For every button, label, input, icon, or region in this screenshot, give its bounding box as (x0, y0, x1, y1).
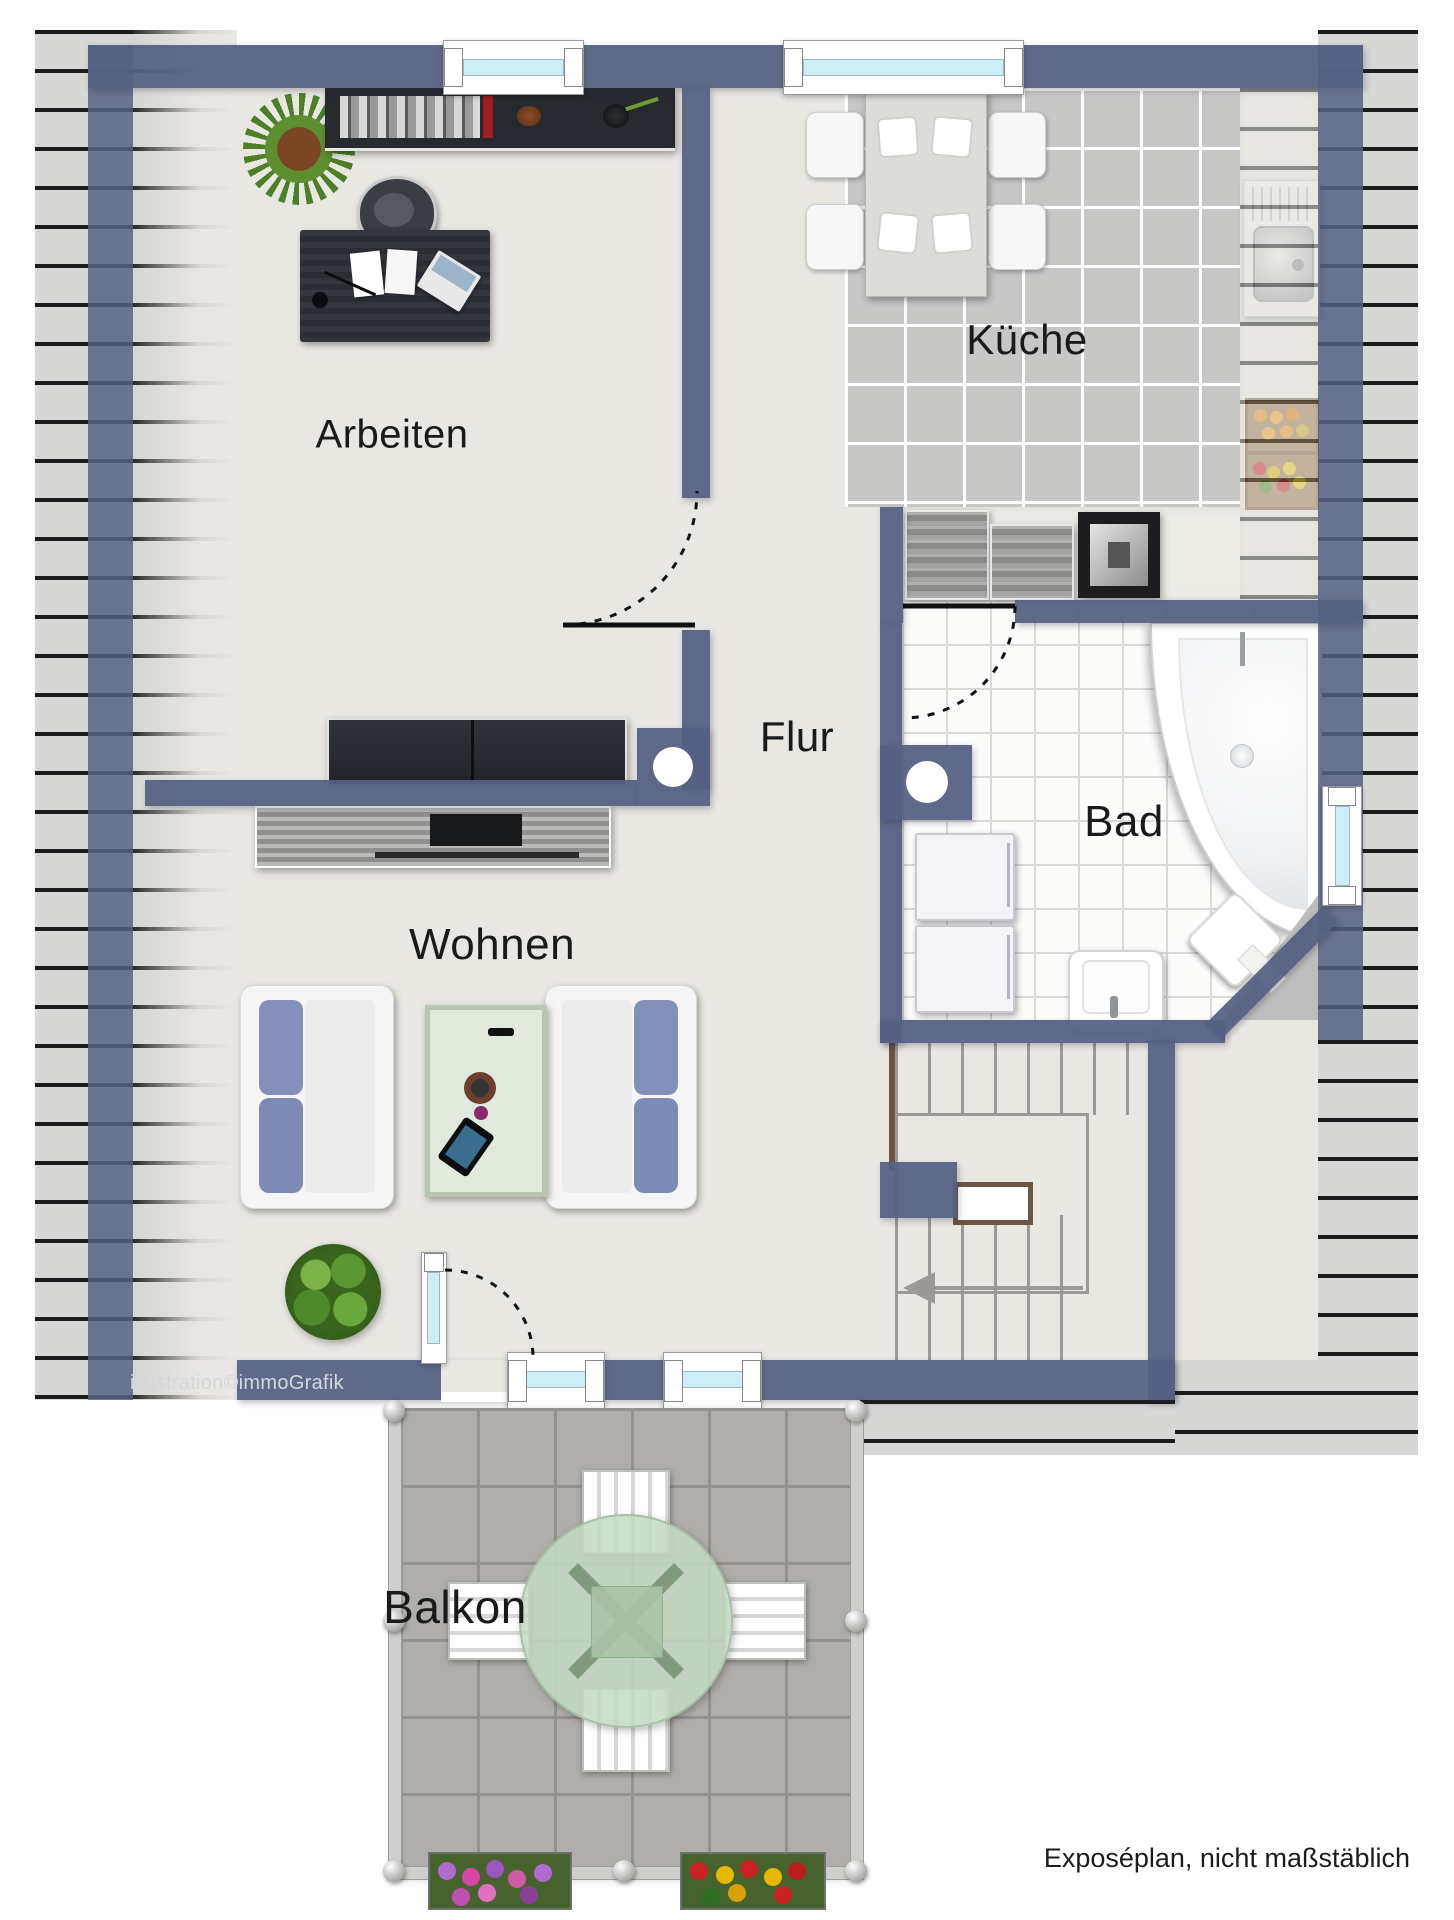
kitchen-cabinet (990, 524, 1074, 600)
kitchen-cabinet (905, 510, 989, 600)
stair-pillar (880, 1162, 957, 1218)
sloped-ceiling-kitchen (1240, 88, 1318, 600)
tablet (437, 1116, 495, 1178)
desk (300, 230, 490, 342)
wall-arbeiten-flur (682, 88, 710, 498)
wall-stair-right (1148, 1040, 1175, 1400)
railing-post (383, 1400, 405, 1422)
room-label-bad: Bad (1084, 797, 1164, 847)
railing-post (613, 1860, 635, 1882)
window-arbeiten (443, 40, 584, 95)
window-wohnen-2 (663, 1352, 762, 1410)
balcony-railing-right (850, 1406, 864, 1880)
oven-coffee-machine (1078, 512, 1160, 598)
sloped-ceiling-left (133, 30, 237, 1400)
sideboard (327, 718, 627, 784)
wall-bad-left (880, 623, 902, 1043)
stair-direction-line (935, 1286, 1083, 1290)
balcony-table (519, 1514, 733, 1728)
footer-note: Exposéplan, nicht maßstäblich (1044, 1843, 1410, 1874)
room-label-kueche: Küche (966, 316, 1088, 364)
dining-chair (806, 204, 864, 270)
railing-post (383, 1860, 405, 1882)
balcony-door-leaf (421, 1252, 447, 1364)
railing-post (845, 1610, 867, 1632)
flower-box-left (428, 1852, 572, 1910)
wall-kitchen-bad-stub (880, 507, 903, 623)
laptop (417, 250, 482, 312)
dining-chair (988, 112, 1046, 178)
room-label-arbeiten: Arbeiten (316, 413, 469, 458)
balcony-chair-right (724, 1582, 806, 1660)
sofa-right (545, 985, 697, 1209)
washing-machine (915, 833, 1015, 921)
room-label-wohnen: Wohnen (409, 920, 575, 970)
sofa-left (240, 985, 394, 1209)
balcony-railing-left (388, 1406, 402, 1880)
watermark: illustration©immoGrafik (130, 1372, 344, 1395)
soundbar (375, 852, 579, 858)
handrail-turn (953, 1182, 1033, 1225)
room-label-flur: Flur (760, 713, 834, 761)
bookshelf (325, 88, 675, 151)
flower-box-right (680, 1852, 826, 1910)
tv-lowboard (255, 806, 611, 868)
balcony-door-threshold (441, 1392, 507, 1402)
railing-post (845, 1860, 867, 1882)
bad-column-circle (906, 761, 948, 803)
wall-top (88, 45, 1363, 88)
handrail (889, 1043, 895, 1171)
coffee-table (425, 1005, 547, 1197)
window-kueche (783, 40, 1024, 95)
plant-wohnen (285, 1244, 381, 1340)
roof-eave-bottom (860, 1400, 1175, 1455)
dining-table (865, 90, 987, 297)
railing-post (845, 1400, 867, 1422)
stairs-upper-flight (895, 1043, 1148, 1115)
window-bad (1322, 786, 1362, 906)
washing-machine (915, 925, 1015, 1013)
wall-kitchen-bad (1015, 600, 1363, 623)
wall-divider-wohnen (145, 780, 637, 806)
stair-direction-arrow (903, 1272, 935, 1304)
tv (430, 814, 522, 846)
wall-left (88, 45, 133, 1400)
column-circle (653, 747, 693, 787)
dining-chair (988, 204, 1046, 270)
window-wohnen-1 (507, 1352, 605, 1410)
dining-chair (806, 112, 864, 178)
room-label-balkon: Balkon (383, 1580, 527, 1634)
floorplan-page: Arbeiten Küche Flur Bad Wohnen Balkon il… (0, 0, 1454, 1920)
